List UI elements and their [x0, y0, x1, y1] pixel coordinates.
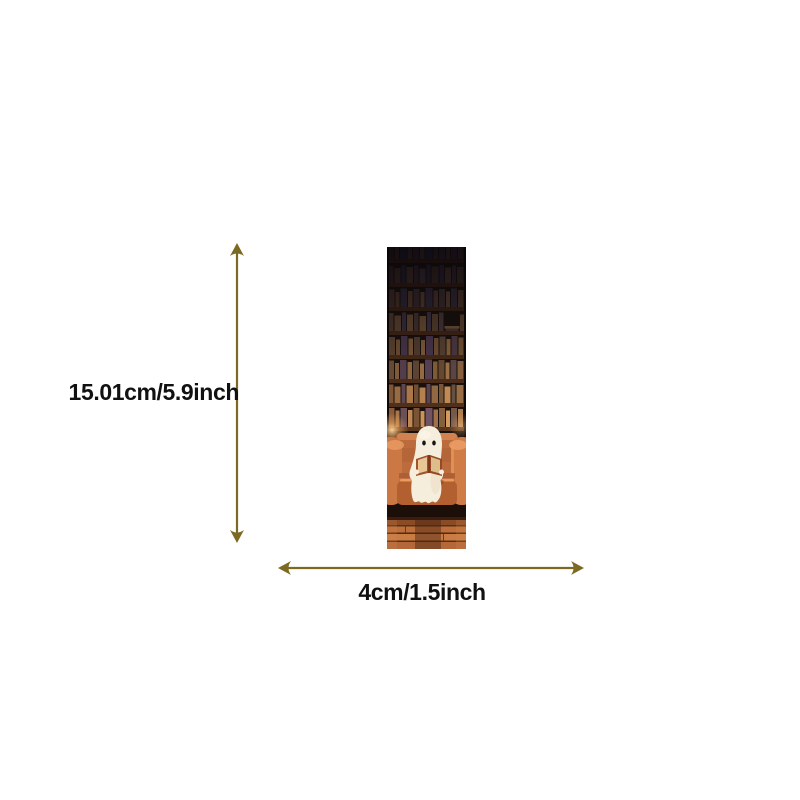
ghost-eye-left: [422, 441, 426, 446]
width-dimension-arrow: [276, 556, 586, 580]
height-dimension-label: 15.01cm/5.9inch: [40, 379, 239, 405]
floor-art: [387, 505, 466, 549]
product-dimension-diagram: 15.01cm/5.9inch: [0, 0, 800, 800]
open-book-icon: [416, 455, 442, 476]
bookmark-product-image: [387, 247, 466, 549]
width-dimension-label: 4cm/1.5inch: [332, 579, 512, 605]
ghost-eye-right: [432, 441, 436, 446]
